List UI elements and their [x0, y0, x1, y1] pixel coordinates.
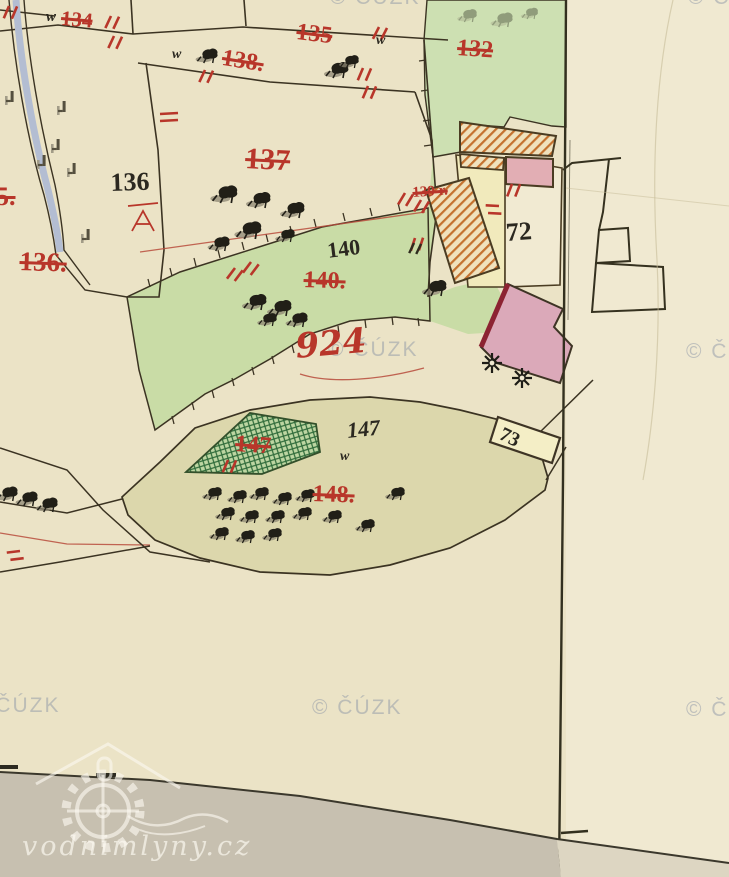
parcel-label-136: 136.: [19, 248, 67, 277]
paper-right-region: [566, 0, 729, 877]
road-parcel-label-924: 924: [294, 324, 368, 364]
parcel-label-55: 5.: [0, 184, 16, 210]
parcel-number-140-black: 140: [326, 236, 361, 262]
letter-w-mark: w: [46, 10, 56, 25]
parcel-label-132: 132: [456, 36, 494, 62]
wooden-building: [460, 122, 556, 156]
letter-w-mark: w: [376, 34, 385, 48]
vodnimlyny-logo: [0, 738, 240, 863]
wooden-building-small: [460, 154, 504, 170]
post-symbols: [5, 91, 90, 243]
parcel-label-147-red: 147: [234, 432, 272, 458]
letter-w-mark: w: [340, 450, 349, 464]
logo-house-roof: [36, 744, 180, 788]
parcel-label-148: 148.: [312, 482, 355, 507]
parcel-number-147-black: 147: [346, 417, 381, 442]
mill-wheel-symbol: [482, 353, 502, 373]
house-number-72: 72: [505, 218, 533, 246]
logo-mill-wheel-icon: [66, 774, 140, 848]
parcel-label-139: 139 r.: [412, 184, 448, 201]
parcel-label-135: 135: [295, 20, 334, 48]
red-triangle-mark: [128, 203, 158, 231]
parcel-label-140: 140.: [303, 268, 346, 293]
parcel-label-134: 134: [60, 8, 93, 32]
house-number-136: 136: [110, 169, 150, 196]
mill-wheel-symbol: [512, 368, 532, 388]
map-viewport[interactable]: © ČÚZK © ČÚZK © ČÚZK © ČÚZK © ČÚZK © ČÚZ…: [0, 0, 729, 877]
parcel-label-138: 138.: [220, 46, 265, 76]
masonry-building-pink: [506, 157, 553, 187]
parcel-label-137: 137: [244, 144, 291, 176]
letter-w-mark: w: [172, 48, 181, 62]
